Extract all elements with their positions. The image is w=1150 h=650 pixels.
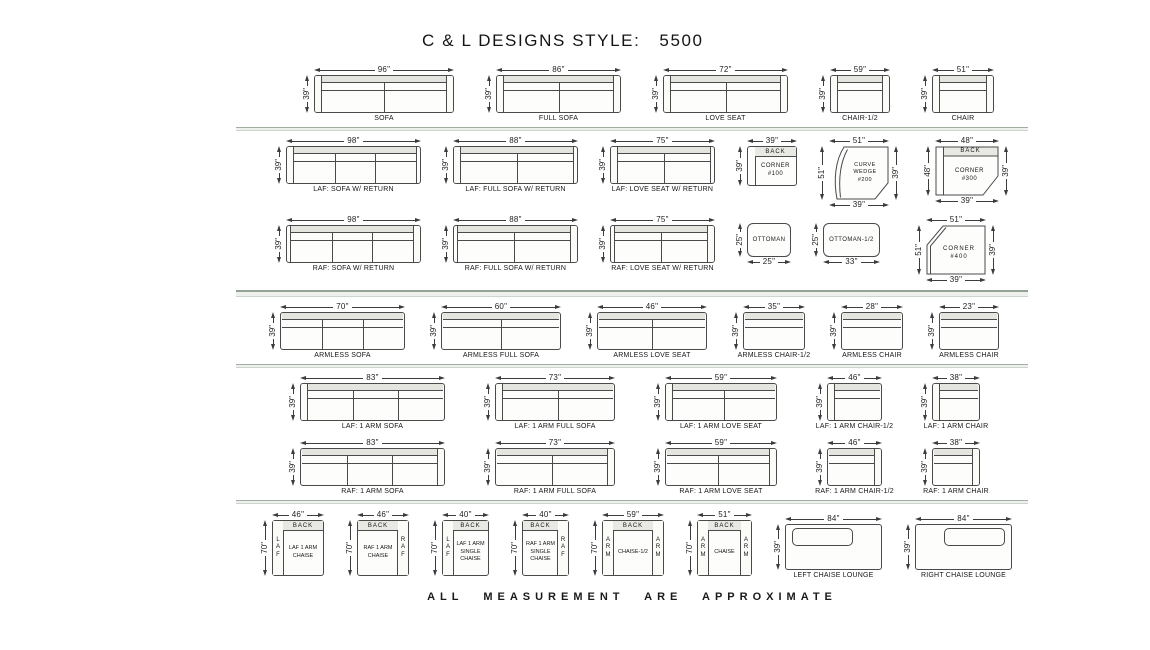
arm-panel-label: ARM <box>743 537 749 560</box>
item-raf-1-arm-love-seat: 59"39"RAF: 1 ARM LOVE SEAT <box>651 438 777 495</box>
dim-line <box>382 443 439 444</box>
dim-line <box>835 141 850 142</box>
left-arm <box>496 384 503 420</box>
arrow-down-icon <box>776 564 780 570</box>
item-armless-full-sofa: 60"39"ARMLESS FULL SOFA <box>427 302 561 359</box>
height-dimension: 39" <box>986 225 1000 275</box>
seat-area <box>308 384 443 420</box>
item-right-chaise-lounge: 84"39"RIGHT CHAISE LOUNGE <box>901 514 1012 579</box>
dim-line <box>564 378 609 379</box>
cushion-divider <box>335 153 336 183</box>
piece-label: RAF 1 ARMSINGLECHAISE <box>523 530 558 575</box>
height-dimension: 39" <box>266 312 280 350</box>
arrow-down-icon <box>818 415 822 421</box>
dim-label: 38" <box>947 439 966 447</box>
dim-line <box>868 205 883 206</box>
cushion-divider <box>501 319 502 349</box>
cushion-divider <box>661 232 662 262</box>
dim-label: 25" <box>812 232 820 248</box>
right-arm <box>707 226 714 262</box>
arrow-right-icon <box>883 139 889 143</box>
dim-line <box>965 280 980 281</box>
arrow-right-icon <box>483 513 489 517</box>
dim-label: 39" <box>850 201 869 209</box>
cushion-divider <box>514 232 515 262</box>
height-dimension: 39" <box>596 146 610 184</box>
seat-line <box>940 398 978 399</box>
width-dimension: 28" <box>841 302 903 312</box>
dim-label: 39" <box>947 276 966 284</box>
width-dimension: 39" <box>935 196 999 206</box>
arrow-down-icon <box>930 344 934 350</box>
dim-label: 39" <box>819 86 827 102</box>
arrow-down-icon <box>593 570 597 576</box>
width-dimension: 88" <box>453 136 578 146</box>
item-laf-1-arm-sofa: 83"39"LAF: 1 ARM SOFA <box>286 373 445 430</box>
left-arm <box>287 147 294 183</box>
width-dimension: 84" <box>785 514 882 524</box>
item-raf-1-arm-chair-1-2: 46"39"RAF: 1 ARM CHAIR-1/2 <box>813 438 882 495</box>
dim-label: 39" <box>892 165 900 181</box>
back-band <box>941 313 997 320</box>
dim-label: 39" <box>275 157 283 173</box>
back-band: BACK <box>944 146 997 156</box>
return-panel <box>710 147 714 183</box>
item-corner-400: 51"51"CORNER#40039"39" <box>912 215 1000 285</box>
dim-line <box>265 526 266 540</box>
item-laf-1-arm-chair-1-2: 46"39"LAF: 1 ARM CHAIR-1/2 <box>813 373 882 430</box>
dim-line <box>661 307 701 308</box>
width-dimension: 70" <box>280 302 405 312</box>
arm-panel-label: RAF <box>400 537 406 560</box>
dim-line <box>778 262 785 263</box>
dim-line <box>307 515 318 516</box>
dim-line <box>392 515 403 516</box>
width-dimension: 46" <box>357 510 409 520</box>
cushion-divider <box>322 319 323 349</box>
seat-area <box>667 449 769 485</box>
item-laf-sofa-w-return: 98"39"LAF: SOFA W/ RETURN <box>272 136 421 193</box>
dim-label: 70" <box>591 540 599 556</box>
dim-line <box>703 515 715 516</box>
dim-label: 51" <box>954 66 973 74</box>
width-dimension: 46" <box>272 510 324 520</box>
piece-label-line: CHAISE <box>714 549 734 556</box>
arrow-right-icon <box>555 305 561 309</box>
arrow-down-icon <box>923 107 927 113</box>
dim-line <box>941 141 958 142</box>
dim-label: 51" <box>818 165 826 181</box>
item-caption: ARMLESS LOVE SEAT <box>613 352 690 359</box>
arrow-down-icon <box>734 344 738 350</box>
seat-area <box>934 449 972 485</box>
back-band <box>940 384 978 391</box>
arrow-down-icon <box>271 344 275 350</box>
return-panel <box>573 147 577 183</box>
right-arm <box>972 449 979 485</box>
arrow-right-icon <box>980 218 986 222</box>
item-raf-love-seat-w-return: 75"39"RAF: LOVE SEAT W/ RETURN <box>596 215 715 272</box>
dim-line <box>781 141 791 142</box>
item-caption: LEFT CHAISE LOUNGE <box>793 572 873 579</box>
dim-line <box>833 443 845 444</box>
dim-label: 39" <box>774 539 782 555</box>
back-band <box>934 449 972 456</box>
arrow-right-icon <box>993 139 999 143</box>
seat-area <box>458 226 570 262</box>
dim-line <box>869 70 884 71</box>
width-dimension: 38" <box>932 438 980 448</box>
dim-line <box>978 307 993 308</box>
piece-label: CHAISE-1/2 <box>613 530 653 575</box>
sofa-drawing <box>286 146 421 184</box>
item-laf-1-arm-full-sofa: 73"39"LAF: 1 ARM FULL SOFA <box>481 373 615 430</box>
arrow-down-icon <box>601 178 605 184</box>
seat-area <box>322 76 446 112</box>
dim-line <box>528 515 536 516</box>
sofa-drawing <box>939 312 999 350</box>
sofa-drawing <box>496 75 621 113</box>
row-raf-return-pieces: 98"39"RAF: SOFA W/ RETURN88"39"RAF: FULL… <box>272 215 1028 285</box>
dim-line <box>690 556 691 570</box>
cushion-divider <box>517 153 518 183</box>
piece-label-line: CURVE <box>854 162 876 169</box>
left-arm <box>664 76 671 112</box>
arm-panel-label: ARM <box>700 537 706 560</box>
height-dimension: 39" <box>651 383 665 421</box>
arm-panel-label: ARM <box>655 537 661 560</box>
dim-line <box>292 220 344 221</box>
dim-label: 59" <box>851 66 870 74</box>
chaise-lounge-drawing <box>785 524 882 570</box>
cushion-divider <box>384 82 385 112</box>
dim-label: 39" <box>1002 163 1010 179</box>
height-dimension: 25" <box>809 223 823 257</box>
dim-label: 39" <box>958 197 977 205</box>
dim-line <box>363 141 415 142</box>
dim-line <box>921 519 954 520</box>
arrow-down-icon <box>894 194 898 200</box>
piece-label-line: CHAISE-1/2 <box>618 549 648 556</box>
width-dimension: 46" <box>597 302 707 312</box>
right-arm-panel: RAF <box>397 521 408 575</box>
dim-line <box>475 515 483 516</box>
arrow-down-icon <box>738 180 742 186</box>
item-caption: LAF: 1 ARM SOFA <box>342 423 403 430</box>
dim-line <box>568 70 615 71</box>
dim-label: 51" <box>947 216 966 224</box>
left-arm <box>454 147 461 183</box>
dim-label: 83" <box>363 439 382 447</box>
left-arm <box>497 76 504 112</box>
dim-line <box>459 220 506 221</box>
arrow-right-icon <box>415 139 421 143</box>
dim-label: 88" <box>506 216 525 224</box>
arrow-down-icon <box>814 251 818 257</box>
seat-area <box>461 147 573 183</box>
height-dimension: 51" <box>815 146 829 200</box>
cushion-divider <box>726 82 727 112</box>
dim-line <box>735 70 782 71</box>
cushion-divider <box>347 455 348 485</box>
item-laf-love-seat-w-return: 75"39"LAF: LOVE SEAT W/ RETURN <box>596 136 715 193</box>
dim-line <box>753 141 763 142</box>
sofa-drawing <box>495 448 615 486</box>
piece-label: OTTOMAN-1/2 <box>829 237 874 243</box>
width-dimension: 84" <box>915 514 1012 524</box>
width-dimension: 59" <box>665 373 777 383</box>
row-separator <box>236 127 1028 131</box>
dim-label: 39" <box>599 157 607 173</box>
width-dimension: 51" <box>697 510 752 520</box>
item-caption: LAF: 1 ARM LOVE SEAT <box>680 423 762 430</box>
width-dimension: 72" <box>663 65 788 75</box>
dim-line <box>642 515 658 516</box>
dim-line <box>525 141 572 142</box>
arrow-down-icon <box>588 344 592 350</box>
sofa-drawing <box>665 448 777 486</box>
height-dimension: 39" <box>583 312 597 350</box>
dim-label: 70" <box>686 540 694 556</box>
dim-label: 98" <box>344 137 363 145</box>
arrow-right-icon <box>883 203 889 207</box>
piece-label-line: #400 <box>950 254 967 262</box>
back-band <box>308 384 443 391</box>
seat-line <box>934 463 972 464</box>
dim-line <box>896 152 897 165</box>
dim-label: 73" <box>546 374 565 382</box>
piece-label-line: SINGLE <box>460 549 480 556</box>
dim-label: 46" <box>289 511 308 519</box>
dim-line <box>306 443 363 444</box>
dim-label: 39" <box>736 158 744 174</box>
dim-line <box>753 262 760 263</box>
dim-label: 84" <box>824 515 843 523</box>
dim-line <box>938 378 947 379</box>
dim-label: 39" <box>928 323 936 339</box>
arrow-down-icon <box>656 480 660 486</box>
width-dimension: 40" <box>522 510 569 520</box>
item-caption: LAF: 1 ARM FULL SOFA <box>514 423 595 430</box>
dim-line <box>965 220 980 221</box>
arrow-right-icon <box>439 376 445 380</box>
sofa-drawing <box>453 225 578 263</box>
piece-label-line: SINGLE <box>530 549 550 556</box>
item-raf-1-arm-chaise: 46"70"RAFBACKRAF 1 ARMCHAISE <box>343 510 409 576</box>
seat-area <box>282 313 403 349</box>
seat-area <box>599 313 705 349</box>
right-arm-panel: RAF <box>557 521 568 575</box>
sofa-drawing <box>827 383 882 421</box>
dim-line <box>616 220 653 221</box>
item-left-chaise-lounge: 84"39"LEFT CHAISE LOUNGE <box>771 514 882 579</box>
arrow-down-icon <box>601 257 605 263</box>
arrow-right-icon <box>709 218 715 222</box>
left-arm <box>933 384 940 420</box>
height-dimension: 39" <box>286 383 300 421</box>
cushion-divider <box>398 390 399 420</box>
dim-label: 39" <box>599 236 607 252</box>
dim-line <box>734 515 746 516</box>
dim-line <box>783 307 799 308</box>
sofa-drawing <box>286 225 421 263</box>
arrow-right-icon <box>876 441 882 445</box>
sofa-drawing <box>663 75 788 113</box>
sofa-drawing <box>743 312 805 350</box>
seat-area <box>615 226 707 262</box>
dim-line <box>595 526 596 540</box>
arrow-down-icon <box>277 178 281 184</box>
cushion-divider <box>558 390 559 420</box>
dim-label: 70" <box>346 540 354 556</box>
dim-label: 39" <box>430 323 438 339</box>
dim-label: 70" <box>511 540 519 556</box>
height-dimension: 39" <box>481 448 495 486</box>
corner-drawing: CORNER#400 <box>926 225 986 275</box>
seat-area <box>302 449 437 485</box>
arrow-down-icon <box>906 564 910 570</box>
dim-line <box>976 141 993 142</box>
item-caption: RAF: 1 ARM CHAIR-1/2 <box>815 488 894 495</box>
seat-area <box>497 449 607 485</box>
dim-label: 70" <box>333 303 352 311</box>
width-dimension: 51" <box>926 215 986 225</box>
item-sofa: 96"39"SOFA <box>300 65 454 122</box>
arrow-down-icon <box>1004 190 1008 196</box>
piece-label: CORNER#300 <box>944 158 995 194</box>
arrow-down-icon <box>917 269 921 275</box>
dim-line <box>938 443 947 444</box>
arrow-down-icon <box>305 107 309 113</box>
dim-line <box>278 515 289 516</box>
row-standard-pieces: 96"39"SOFA86"39"FULL SOFA72"39"LOVE SEAT… <box>300 65 1028 122</box>
dim-label: 23" <box>960 303 979 311</box>
dim-line <box>363 220 415 221</box>
height-dimension: 70" <box>428 520 442 576</box>
back-cushion <box>944 528 1005 546</box>
dim-label: 39" <box>816 394 824 410</box>
cushion-divider <box>559 82 560 112</box>
piece-label-line: #300 <box>962 176 977 184</box>
width-dimension: 46" <box>827 373 882 383</box>
dim-line <box>972 70 988 71</box>
width-dimension: 86" <box>496 65 621 75</box>
width-dimension: 51" <box>829 136 889 146</box>
seat-line <box>829 463 874 464</box>
arrow-right-icon <box>709 139 715 143</box>
piece-label-line: #200 <box>858 177 872 184</box>
height-dimension: 39" <box>272 146 286 184</box>
arrow-right-icon <box>884 68 890 72</box>
dim-line <box>671 378 712 379</box>
dim-label: 39" <box>484 459 492 475</box>
cushion-divider <box>375 153 376 183</box>
dim-line <box>868 141 883 142</box>
seat-line <box>940 90 986 91</box>
cushion-divider <box>392 455 393 485</box>
chaise-lounge-drawing <box>915 524 1012 570</box>
dim-line <box>672 141 709 142</box>
dim-line <box>730 443 771 444</box>
height-dimension: 39" <box>300 75 314 113</box>
dim-label: 39" <box>816 459 824 475</box>
width-dimension: 73" <box>495 373 615 383</box>
item-caption: RAF: 1 ARM LOVE SEAT <box>679 488 762 495</box>
arrow-right-icon <box>746 513 752 517</box>
arrow-right-icon <box>448 68 454 72</box>
height-dimension: 39" <box>918 383 932 421</box>
seat-line <box>843 327 901 328</box>
back-band <box>829 449 874 456</box>
dim-line <box>515 526 516 540</box>
arrow-down-icon <box>433 570 437 576</box>
arrow-right-icon <box>399 305 405 309</box>
dim-line <box>510 307 555 308</box>
dim-line <box>515 556 516 570</box>
piece-label: RAF 1 ARMCHAISE <box>358 530 398 575</box>
dim-line <box>835 205 850 206</box>
width-dimension: 75" <box>610 215 715 225</box>
dim-line <box>822 152 823 165</box>
footer-note: ALL MEASUREMENT ARE APPROXIMATE <box>236 591 1028 603</box>
piece-label: CORNER#400 <box>934 235 984 273</box>
dim-line <box>730 378 771 379</box>
dim-line <box>908 530 909 539</box>
seat-area <box>745 313 803 349</box>
width-dimension: 75" <box>610 136 715 146</box>
piece-label-line: LAF 1 ARM <box>456 541 484 548</box>
left-arm <box>933 76 940 112</box>
dim-line <box>864 443 876 444</box>
dim-line <box>973 519 1006 520</box>
arrow-down-icon <box>432 344 436 350</box>
item-raf-full-sofa-w-return: 88"39"RAF: FULL SOFA W/ RETURN <box>439 215 578 272</box>
dim-line <box>896 181 897 194</box>
sofa-drawing <box>300 448 445 486</box>
right-arm <box>769 449 776 485</box>
dim-label: 39" <box>904 539 912 555</box>
cushion-divider <box>552 455 553 485</box>
sofa-drawing <box>441 312 561 350</box>
height-dimension: 39" <box>918 75 932 113</box>
row-separator <box>236 500 1028 504</box>
height-dimension: 39" <box>813 448 827 486</box>
arrow-right-icon <box>791 139 797 143</box>
width-dimension: 35" <box>743 302 805 312</box>
height-dimension: 39" <box>439 146 453 184</box>
item-caption: RAF: 1 ARM FULL SOFA <box>514 488 596 495</box>
item-caption: LOVE SEAT <box>705 115 745 122</box>
seat-line <box>941 327 997 328</box>
chaise-drawing: LAFBACKLAF 1 ARMCHAISE <box>272 520 324 576</box>
arrow-right-icon <box>771 441 777 445</box>
cushion-divider <box>652 319 653 349</box>
dim-label: 39" <box>442 236 450 252</box>
sofa-drawing <box>665 383 777 421</box>
height-dimension: 70" <box>508 520 522 576</box>
ottoman-drawing: OTTOMAN <box>747 223 791 257</box>
piece-label-line: LAF 1 ARM <box>289 545 317 552</box>
piece-label-line: CORNER <box>761 163 790 171</box>
width-dimension: 88" <box>453 215 578 225</box>
dim-label: 75" <box>653 216 672 224</box>
width-dimension: 38" <box>932 373 980 383</box>
height-dimension: 39" <box>889 146 903 200</box>
width-dimension: 98" <box>286 215 421 225</box>
sofa-drawing <box>597 312 707 350</box>
height-dimension: 39" <box>481 383 495 421</box>
dim-line <box>1006 152 1007 163</box>
